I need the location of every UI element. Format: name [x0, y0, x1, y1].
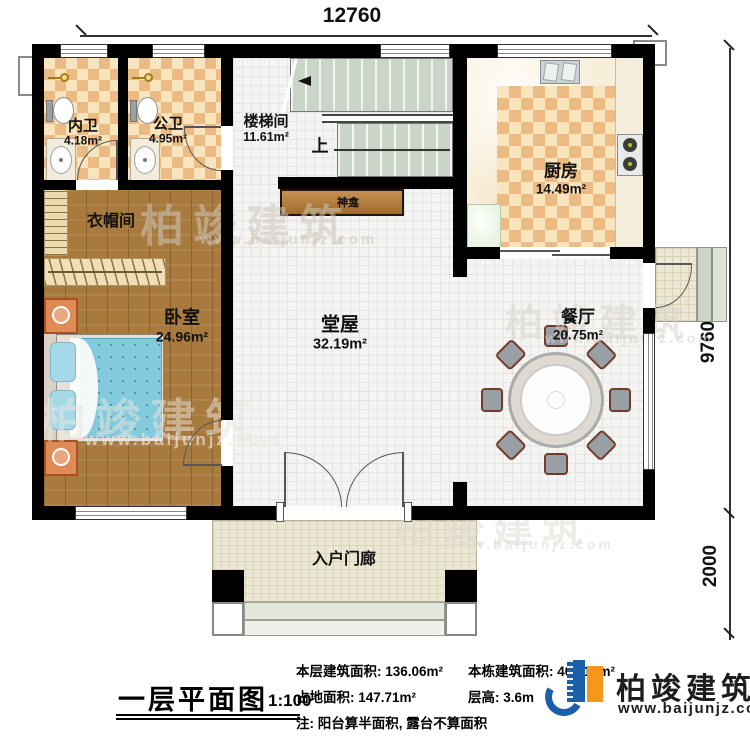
dimension-top-line	[80, 35, 652, 37]
logo-tower-orange	[587, 666, 603, 702]
wall-main-vertical-a	[221, 58, 233, 126]
room-name: 公卫	[149, 115, 187, 132]
wardrobe-rack-left	[44, 188, 68, 256]
porch-pillar-base	[212, 602, 244, 636]
stair-rail	[322, 114, 453, 123]
towel-hook	[144, 73, 153, 82]
stat-land-area: 占地面积: 147.71m²	[296, 686, 416, 706]
room-name: 堂屋	[313, 315, 367, 337]
wall-main-vertical-b	[221, 170, 233, 420]
dimension-top-label: 12760	[323, 4, 381, 28]
wall-kitchen-bottom-a	[453, 247, 500, 259]
porch-pillar-right	[445, 570, 477, 602]
stove-burner	[623, 138, 637, 152]
room-label-dining: 餐厅 20.75m²	[553, 307, 603, 342]
window-stairwell	[380, 44, 450, 58]
stove-burner	[623, 157, 637, 171]
room-label-bedroom: 卧室 24.96m²	[156, 308, 208, 345]
door-jamb	[276, 502, 284, 522]
toilet-tank	[46, 100, 53, 122]
room-name: 厨房	[536, 161, 586, 181]
title-underline	[116, 714, 300, 720]
logo-tower-blue	[567, 660, 585, 702]
wall-main-vertical-c	[221, 466, 233, 506]
bed-pillow	[50, 342, 76, 382]
side-porch-step	[697, 247, 712, 322]
porch-step	[244, 620, 445, 636]
window-bathroom1	[60, 44, 108, 58]
room-name: 餐厅	[553, 307, 603, 327]
stair-direction-arrow	[298, 76, 311, 86]
wall-kitchen-bottom-b	[610, 247, 643, 259]
wall-stub-dining-top	[453, 259, 467, 277]
shrine-label: 神龛	[337, 194, 359, 210]
wall-bath-bottom-b	[118, 180, 230, 190]
brand-website: www.baijunjz.com	[618, 700, 750, 717]
window-bathroom2	[152, 44, 205, 58]
wall-bath-divider	[118, 58, 128, 188]
dimension-right-line	[729, 48, 731, 640]
kitchen-sink-basin	[543, 62, 559, 82]
wall-bath-bottom-a	[44, 180, 76, 190]
porch-step	[244, 602, 445, 620]
room-name: 楼梯间	[243, 113, 289, 130]
porch-pillar-left	[212, 570, 244, 602]
dining-chair	[609, 388, 631, 412]
window-kitchen	[497, 44, 612, 58]
room-name: 入户门廊	[312, 551, 376, 569]
door-leaf-bathroom2	[184, 126, 221, 128]
stat-note: 注: 阳台算半面积, 露台不算面积	[296, 712, 487, 732]
door-gap-side	[643, 263, 655, 308]
door-leaf-entry-right	[402, 452, 404, 507]
door-jamb	[404, 502, 412, 522]
room-area: 4.95m²	[149, 133, 187, 147]
wall-left	[32, 44, 44, 520]
stat-floor-area: 本层建筑面积: 136.06m²	[296, 660, 443, 680]
dimension-tick	[75, 24, 86, 35]
stat-floor-height: 层高: 3.6m	[468, 686, 534, 706]
floor-plan-canvas: 12760 9760 2000 上 神龛	[0, 0, 750, 742]
stair-up-line	[334, 149, 450, 151]
door-gap-entry	[283, 506, 405, 520]
room-label-cloakroom: 衣帽间	[87, 213, 135, 231]
towel-hook	[60, 73, 69, 82]
sliding-door-gap-kitchen	[500, 247, 610, 259]
side-porch-step	[712, 247, 727, 322]
wardrobe-rod	[48, 271, 162, 273]
room-label-hall: 堂屋 32.19m²	[313, 315, 367, 354]
brand-logo-icon	[545, 658, 609, 718]
room-area: 32.19m²	[313, 337, 367, 354]
plan-title: 一层平面图	[118, 678, 268, 717]
sliding-door-panel	[552, 254, 610, 256]
porch-pillar-base	[445, 602, 477, 636]
room-area: 14.49m²	[536, 181, 586, 197]
watermark-url: www.baijunjz.com	[85, 430, 280, 450]
stair-up-label: 上	[312, 132, 329, 157]
room-label-porch: 入户门廊	[312, 551, 376, 569]
room-label-neiwei: 内卫 4.18m²	[64, 117, 102, 148]
window-dining-east	[643, 333, 655, 470]
toilet-tank	[130, 100, 137, 122]
dining-chair	[481, 388, 503, 412]
kitchen-sink-basin	[561, 62, 577, 82]
door-leaf-bedroom	[183, 464, 222, 466]
room-label-kitchen: 厨房 14.49m²	[536, 161, 586, 196]
door-leaf-entry-left	[284, 452, 286, 507]
wall-right-upper	[643, 44, 655, 263]
room-label-stairwell: 楼梯间 11.61m²	[243, 113, 289, 145]
room-name: 衣帽间	[87, 213, 135, 231]
door-leaf-side	[656, 263, 692, 265]
room-area: 20.75m²	[553, 327, 603, 343]
window-bedroom	[75, 506, 187, 520]
stair-upper-flight	[290, 58, 453, 112]
room-area: 11.61m²	[243, 130, 289, 144]
room-area: 24.96m²	[156, 328, 208, 344]
wall-stub-dining-bottom	[453, 482, 467, 506]
sink-drain	[59, 158, 63, 162]
dimension-right-lower-label: 2000	[700, 545, 722, 587]
nightstand-knob	[52, 306, 70, 324]
watermark-url: www.baijunjz.com	[445, 536, 614, 552]
room-name: 内卫	[64, 117, 102, 134]
dining-chair	[544, 453, 568, 475]
wall-kitchen-left	[453, 58, 467, 260]
door-leaf-bathroom1	[116, 140, 118, 180]
room-name: 卧室	[156, 308, 208, 329]
dimension-tick	[647, 24, 658, 35]
sliding-door-panel	[500, 250, 560, 252]
sink-drain	[143, 158, 147, 162]
room-label-gongwei: 公卫 4.95m²	[149, 115, 187, 146]
wall-stairhall-bottom	[278, 177, 453, 189]
dining-table-center	[547, 391, 565, 409]
fridge	[467, 204, 501, 248]
